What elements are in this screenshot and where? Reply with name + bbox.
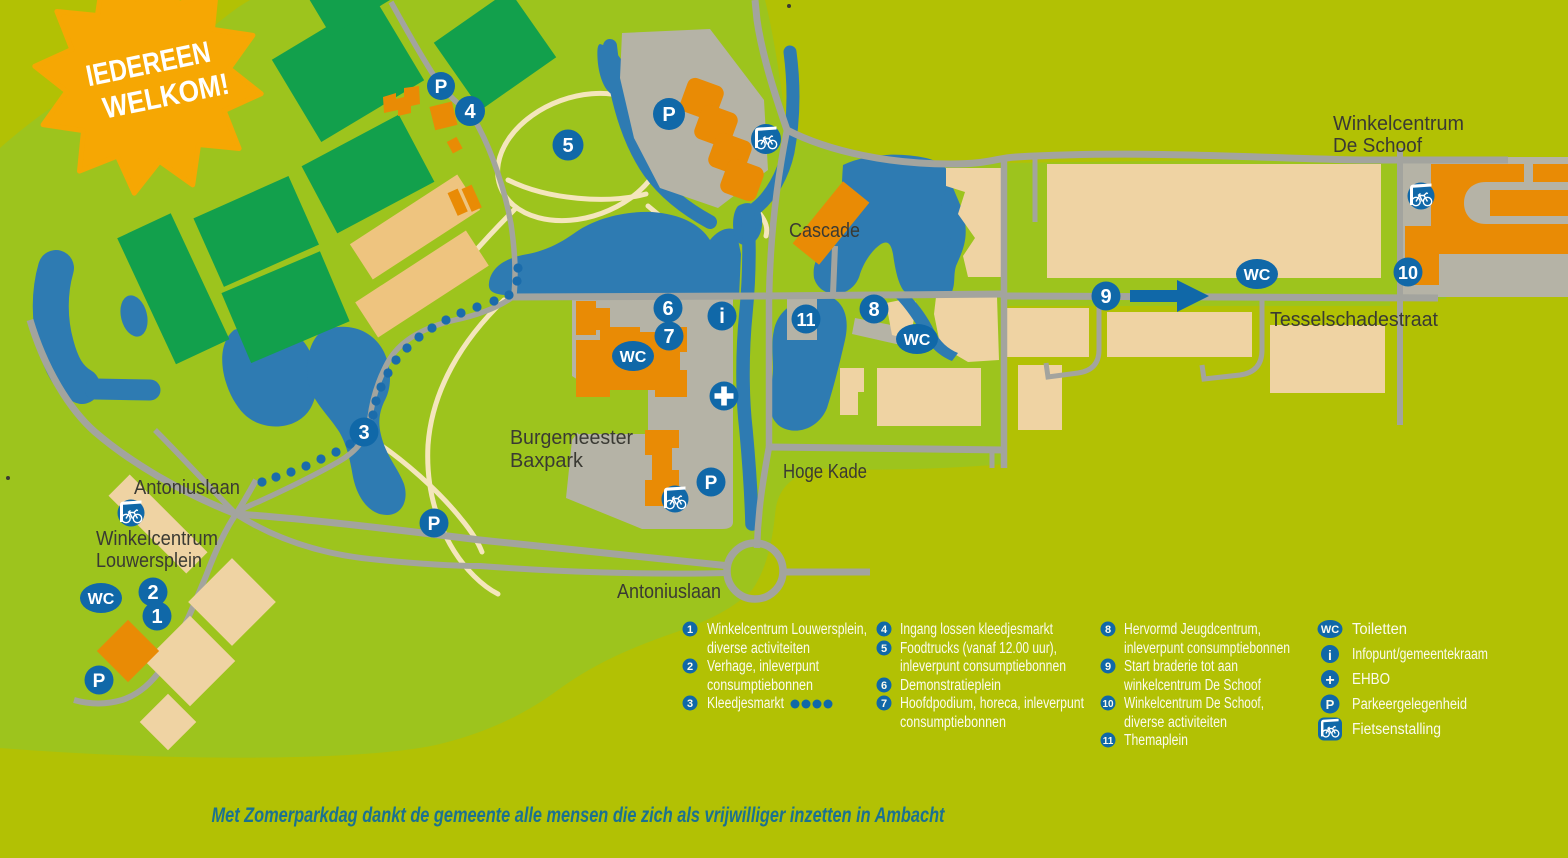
svg-text:P: P <box>705 473 718 494</box>
svg-text:consumptiebonnen: consumptiebonnen <box>900 714 1006 731</box>
svg-text:1: 1 <box>151 606 162 628</box>
svg-text:Baxpark: Baxpark <box>510 450 584 472</box>
svg-text:Kleedjesmarkt: Kleedjesmarkt <box>707 695 785 712</box>
svg-text:Met Zomerparkdag dankt de geme: Met Zomerparkdag dankt de gemeente alle … <box>212 804 946 827</box>
svg-text:Cascade: Cascade <box>789 220 860 242</box>
svg-text:6: 6 <box>881 680 887 692</box>
svg-text:10: 10 <box>1102 699 1114 710</box>
svg-text:P: P <box>93 671 106 692</box>
svg-text:De Schoof: De Schoof <box>1333 135 1422 157</box>
svg-text:P: P <box>662 104 675 126</box>
svg-text:11: 11 <box>796 310 815 330</box>
svg-text:WC: WC <box>1244 267 1271 284</box>
svg-text:diverse activiteiten: diverse activiteiten <box>707 640 810 657</box>
svg-text:Tesselschadestraat: Tesselschadestraat <box>1270 309 1438 331</box>
svg-text:Antoniuslaan: Antoniuslaan <box>617 581 721 603</box>
svg-text:Start braderie tot aan: Start braderie tot aan <box>1124 658 1238 675</box>
svg-text:WC: WC <box>88 591 115 608</box>
svg-text:9: 9 <box>1105 661 1111 673</box>
svg-text:Toiletten: Toiletten <box>1352 621 1407 638</box>
svg-text:Verhage, inleverpunt: Verhage, inleverpunt <box>707 658 820 675</box>
svg-text:+: + <box>1325 672 1334 689</box>
svg-text:10: 10 <box>1398 263 1418 283</box>
svg-text:i: i <box>1328 647 1332 663</box>
svg-text:Hoge Kade: Hoge Kade <box>783 461 867 483</box>
svg-text:7: 7 <box>881 698 887 710</box>
svg-text:Burgemeester: Burgemeester <box>510 427 633 449</box>
svg-text:Louwersplein: Louwersplein <box>96 550 202 572</box>
svg-text:P: P <box>1326 697 1335 712</box>
svg-text:Infopunt/gemeentekraam: Infopunt/gemeentekraam <box>1352 646 1488 663</box>
svg-text:inleverpunt consumptiebonnen: inleverpunt consumptiebonnen <box>1124 640 1290 657</box>
svg-text:9: 9 <box>1100 286 1111 308</box>
svg-text:Hervormd Jeugdcentrum,: Hervormd Jeugdcentrum, <box>1124 621 1261 638</box>
svg-text:5: 5 <box>562 135 573 157</box>
svg-text:Hoofdpodium, horeca, inleverpu: Hoofdpodium, horeca, inleverpunt <box>900 695 1085 712</box>
svg-text:Foodtrucks (vanaf 12.00 uur),: Foodtrucks (vanaf 12.00 uur), <box>900 640 1057 657</box>
svg-text:3: 3 <box>358 422 369 444</box>
svg-text:Winkelcentrum: Winkelcentrum <box>96 528 218 550</box>
svg-text:WC: WC <box>904 332 931 349</box>
svg-text:EHBO: EHBO <box>1352 671 1390 688</box>
svg-text:Winkelcentrum De Schoof,: Winkelcentrum De Schoof, <box>1124 695 1264 712</box>
svg-text:Winkelcentrum Louwersplein,: Winkelcentrum Louwersplein, <box>707 621 867 638</box>
svg-text:8: 8 <box>1105 624 1111 636</box>
svg-text:i: i <box>719 305 725 328</box>
svg-text:Themaplein: Themaplein <box>1124 732 1188 749</box>
svg-text:2: 2 <box>687 661 693 673</box>
svg-text:4: 4 <box>881 624 888 636</box>
svg-text:P: P <box>428 514 441 535</box>
svg-text:7: 7 <box>663 326 674 348</box>
svg-text:diverse activiteiten: diverse activiteiten <box>1124 714 1227 731</box>
svg-text:WC: WC <box>620 349 647 366</box>
svg-text:5: 5 <box>881 643 887 655</box>
svg-text:Fietsenstalling: Fietsenstalling <box>1352 721 1441 738</box>
svg-text:4: 4 <box>464 101 476 123</box>
svg-text:6: 6 <box>662 298 673 320</box>
svg-text:8: 8 <box>868 299 879 321</box>
svg-text:1: 1 <box>687 624 693 636</box>
svg-text:3: 3 <box>687 698 693 710</box>
svg-text:Ingang lossen kleedjesmarkt: Ingang lossen kleedjesmarkt <box>900 621 1054 638</box>
svg-text:Demonstratieplein: Demonstratieplein <box>900 677 1001 694</box>
svg-text:Winkelcentrum: Winkelcentrum <box>1333 113 1464 135</box>
svg-text:11: 11 <box>1103 736 1114 747</box>
svg-text:winkelcentrum De Schoof: winkelcentrum De Schoof <box>1123 677 1261 694</box>
svg-text:consumptiebonnen: consumptiebonnen <box>707 677 813 694</box>
svg-text:Parkeergelegenheid: Parkeergelegenheid <box>1352 696 1467 713</box>
svg-text:inleverpunt consumptiebonnen: inleverpunt consumptiebonnen <box>900 658 1066 675</box>
svg-text:WC: WC <box>1321 624 1339 636</box>
svg-text:Antoniuslaan: Antoniuslaan <box>134 477 240 499</box>
svg-text:2: 2 <box>147 582 158 604</box>
svg-text:P: P <box>435 77 448 98</box>
